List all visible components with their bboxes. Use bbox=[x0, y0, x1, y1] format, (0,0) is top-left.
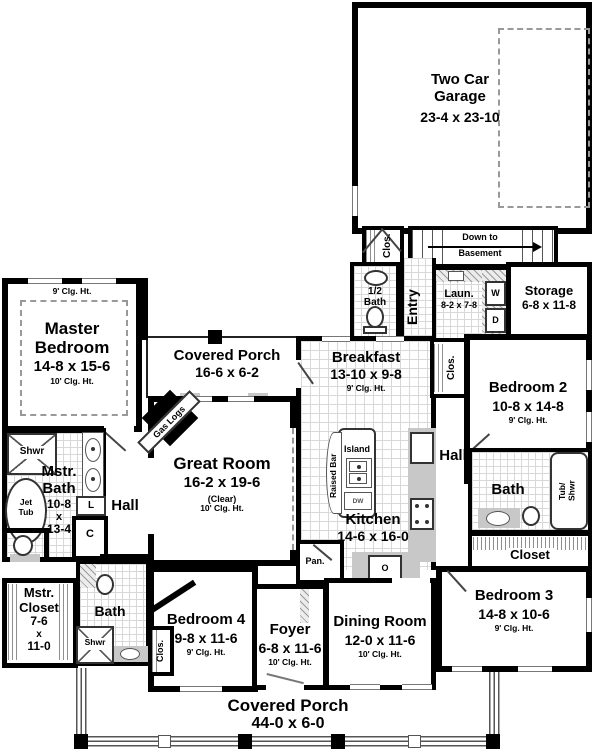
foyer-name: Foyer bbox=[270, 622, 311, 639]
bedroom2-closet-label: Clos. bbox=[446, 344, 457, 392]
bedroom3-name: Bedroom 3 bbox=[475, 588, 553, 605]
garage-dims: 23-4 x 23-10 bbox=[420, 110, 499, 126]
bath4-shower-text: Shwr bbox=[85, 638, 106, 648]
half-bath-toilet-tank bbox=[363, 326, 387, 334]
washer-label: W bbox=[485, 288, 506, 298]
bedroom2-label: Bedroom 2 10-8 x 14-8 9' Clg. Ht. bbox=[468, 380, 588, 426]
bath4-name: Bath bbox=[94, 604, 125, 620]
bedroom3-window bbox=[452, 666, 482, 672]
storage-label: Storage 6-8 x 11-8 bbox=[506, 284, 592, 312]
washer-text: W bbox=[491, 288, 500, 298]
laundry-name: Laun. bbox=[444, 288, 473, 300]
stairs-line2: Basement bbox=[458, 248, 501, 258]
laundry-dims: 8-2 x 7-8 bbox=[441, 300, 477, 310]
entry-text: Entry bbox=[405, 289, 421, 325]
hall-right-label: Hall bbox=[434, 448, 472, 465]
master-bedroom-window bbox=[82, 278, 116, 284]
kitchen-name: Kitchen bbox=[345, 512, 400, 529]
porch-post-white bbox=[408, 735, 421, 748]
bedroom4-clg: 9' Clg. Ht. bbox=[187, 648, 226, 658]
dishwasher: DW bbox=[344, 492, 372, 510]
bath4-shelves bbox=[80, 564, 96, 588]
dryer-text: D bbox=[492, 315, 499, 325]
bedroom2-name: Bedroom 2 bbox=[489, 380, 567, 397]
master-sink bbox=[85, 438, 101, 462]
front-porch-rail-left bbox=[76, 668, 87, 742]
master-shower-label: Shwr bbox=[12, 446, 52, 457]
breakfast-clg: 9' Clg. Ht. bbox=[347, 384, 386, 394]
master-bath-name2: Bath bbox=[42, 481, 75, 498]
master-closet-d1: 7-6 bbox=[30, 615, 47, 628]
entry-label: Entry bbox=[405, 272, 421, 342]
mb-name2: Bedroom bbox=[35, 338, 110, 357]
rear-porch-dims: 16-6 x 6-2 bbox=[195, 365, 259, 381]
master-bath-d1: 10-8 bbox=[47, 498, 71, 511]
dishwasher-label: DW bbox=[353, 498, 364, 505]
bedroom3-window bbox=[518, 666, 552, 672]
master-bath-name1: Mstr. bbox=[41, 464, 76, 481]
porch-post bbox=[331, 734, 345, 749]
great-room-porch-door bbox=[228, 396, 254, 402]
hall-left-label: Hall bbox=[104, 498, 146, 515]
entry-closet-label: Clos. bbox=[382, 230, 393, 262]
bath4-sink bbox=[120, 648, 140, 660]
entry-closet-text: Clos. bbox=[382, 234, 393, 258]
bath2-label: Bath bbox=[478, 482, 538, 499]
master-bedroom-label: 9' Clg. Ht. Master Bedroom 14-8 x 15-6 1… bbox=[8, 287, 136, 387]
kitchen-label: Kitchen 14-6 x 16-0 bbox=[306, 512, 440, 544]
hall-right-text: Hall bbox=[439, 448, 467, 465]
breakfast-label: Breakfast 13-10 x 9-8 9' Clg. Ht. bbox=[300, 350, 432, 394]
master-closet-label: Mstr. Closet 7-6 x 11-0 bbox=[6, 586, 72, 653]
kitchen-dims: 14-6 x 16-0 bbox=[337, 529, 409, 545]
raised-bar-text: Raised Bar bbox=[329, 454, 339, 498]
master-closet-name1: Mstr. bbox=[24, 586, 54, 601]
half-bath-sink bbox=[364, 270, 388, 286]
storage-name: Storage bbox=[525, 284, 573, 299]
foyer-niche bbox=[300, 589, 309, 623]
laundry-label: Laun. 8-2 x 7-8 bbox=[434, 288, 484, 310]
breakfast-window bbox=[322, 336, 350, 342]
breakfast-dims: 13-10 x 9-8 bbox=[330, 367, 402, 383]
floor-plan: Gas Logs DW O bbox=[0, 0, 600, 752]
dining-kitchen-opening bbox=[392, 578, 430, 584]
master-shower-text: Shwr bbox=[20, 446, 44, 457]
porch-post-white bbox=[158, 735, 171, 748]
bath4-shower-label: Shwr bbox=[80, 638, 110, 648]
bedroom2-dims: 10-8 x 14-8 bbox=[492, 399, 564, 415]
great-room-label: Great Room 16-2 x 19-6 (Clear) 10' Clg. … bbox=[154, 454, 290, 513]
foyer-clg: 10' Clg. Ht. bbox=[268, 658, 312, 668]
bath2-name: Bath bbox=[491, 482, 524, 499]
bath4-label: Bath bbox=[80, 604, 140, 620]
stairs-line1: Down to bbox=[462, 232, 498, 242]
bath4-toilet bbox=[96, 574, 114, 595]
cased-opening-dashed bbox=[292, 428, 295, 550]
pantry-text: Pan. bbox=[305, 556, 324, 566]
master-closet-d3: 11-0 bbox=[27, 640, 50, 653]
bedroom3-label: Bedroom 3 14-8 x 10-6 9' Clg. Ht. bbox=[440, 588, 588, 634]
mb-dims: 14-8 x 15-6 bbox=[34, 359, 111, 376]
dining-name: Dining Room bbox=[333, 614, 426, 631]
mb-clg10: 10' Clg. Ht. bbox=[50, 377, 94, 387]
pantry-label: Pan. bbox=[298, 556, 332, 566]
front-porch-dims: 44-0 x 6-0 bbox=[252, 715, 325, 733]
porch-post bbox=[486, 734, 500, 749]
bedroom3-clg: 9' Clg. Ht. bbox=[495, 624, 534, 634]
linen-label: L bbox=[76, 500, 106, 511]
dryer-label: D bbox=[485, 315, 506, 325]
great-room-name: Great Room bbox=[173, 454, 270, 473]
master-toilet bbox=[13, 535, 33, 556]
front-porch-name: Covered Porch bbox=[228, 696, 349, 715]
oven-box: O bbox=[368, 555, 402, 580]
bedroom2-closet-text: Clos. bbox=[446, 356, 457, 380]
island-label: Island bbox=[340, 444, 374, 454]
oven-label: O bbox=[381, 563, 388, 573]
bedroom4-label: Bedroom 4 9-8 x 11-6 9' Clg. Ht. bbox=[158, 612, 254, 658]
half-bath-toilet bbox=[366, 306, 384, 328]
rear-porch-label: Covered Porch 16-6 x 6-2 bbox=[150, 348, 304, 380]
dining-dims: 12-0 x 11-6 bbox=[345, 633, 416, 649]
bath2-toilet bbox=[522, 506, 540, 526]
bedroom3-closet-label: Closet bbox=[468, 548, 592, 563]
porch-post bbox=[238, 734, 252, 749]
stairs-label: Down to Basement bbox=[444, 232, 516, 258]
front-porch-rail-bottom bbox=[76, 736, 500, 748]
closet-c-text: C bbox=[86, 528, 94, 540]
garage-label: Two Car Garage 23-4 x 23-10 bbox=[372, 72, 548, 125]
island-sink bbox=[346, 458, 372, 488]
garage-side-door bbox=[352, 186, 358, 216]
great-room-dims: 16-2 x 19-6 bbox=[184, 475, 261, 492]
foyer-dims: 6-8 x 11-6 bbox=[258, 641, 321, 657]
bath2-tub-label: Tub/ Shwr bbox=[558, 460, 577, 522]
bedroom4-dims: 9-8 x 11-6 bbox=[174, 631, 237, 647]
half-bath-line2: Bath bbox=[364, 297, 386, 308]
master-bedroom-window bbox=[28, 278, 62, 284]
exterior-wall-stub bbox=[136, 278, 148, 340]
bedroom3-closet-text: Closet bbox=[506, 548, 554, 563]
bath2-tub-line2: Shwr bbox=[568, 481, 578, 502]
closet-c-label: C bbox=[72, 528, 108, 540]
bedroom4-name: Bedroom 4 bbox=[167, 612, 245, 629]
half-bath-line1: 1/2 bbox=[368, 286, 382, 297]
master-bedroom-door-leaf bbox=[103, 430, 127, 452]
refrigerator bbox=[410, 432, 434, 464]
master-closet-name2: Closet bbox=[19, 601, 59, 616]
bedroom3-dims: 14-8 x 10-6 bbox=[478, 607, 550, 623]
porch-column bbox=[208, 330, 222, 344]
hall-left-text: Hall bbox=[111, 498, 139, 515]
rear-porch-name: Covered Porch bbox=[174, 348, 281, 365]
front-porch-rail-right bbox=[489, 672, 500, 738]
island-text: Island bbox=[344, 444, 370, 454]
storage-dims: 6-8 x 11-8 bbox=[522, 299, 576, 312]
bedroom2-clg: 9' Clg. Ht. bbox=[509, 416, 548, 426]
half-bath-label: 1/2 Bath bbox=[352, 286, 398, 308]
breakfast-window bbox=[376, 336, 404, 342]
dining-window bbox=[350, 684, 380, 690]
great-room-clg: 10' Clg. Ht. bbox=[200, 504, 244, 514]
laundry-sink bbox=[448, 271, 464, 281]
bedroom4-window bbox=[180, 686, 222, 692]
bedroom2-closet-rod bbox=[434, 344, 446, 392]
breakfast-name: Breakfast bbox=[332, 350, 400, 367]
foyer-label: Foyer 6-8 x 11-6 10' Clg. Ht. bbox=[252, 622, 328, 668]
dining-window bbox=[402, 684, 432, 690]
garage-name2: Garage bbox=[434, 89, 486, 106]
front-door bbox=[266, 684, 304, 690]
dining-label: Dining Room 12-0 x 11-6 10' Clg. Ht. bbox=[324, 614, 436, 660]
bath2-sink bbox=[486, 511, 510, 526]
front-porch-label: Covered Porch 44-0 x 6-0 bbox=[138, 696, 438, 733]
hall-wall bbox=[100, 554, 150, 562]
garage-name: Two Car bbox=[431, 72, 489, 89]
raised-bar-label: Raised Bar bbox=[329, 448, 339, 504]
master-bedroom-door bbox=[104, 426, 134, 432]
dining-clg: 10' Clg. Ht. bbox=[358, 650, 402, 660]
porch-post bbox=[74, 734, 88, 749]
linen-text: L bbox=[88, 500, 94, 511]
mb-name1: Master bbox=[45, 319, 100, 338]
master-bath-d3: 13-4 bbox=[47, 523, 71, 536]
mb-clg9: 9' Clg. Ht. bbox=[53, 287, 92, 297]
